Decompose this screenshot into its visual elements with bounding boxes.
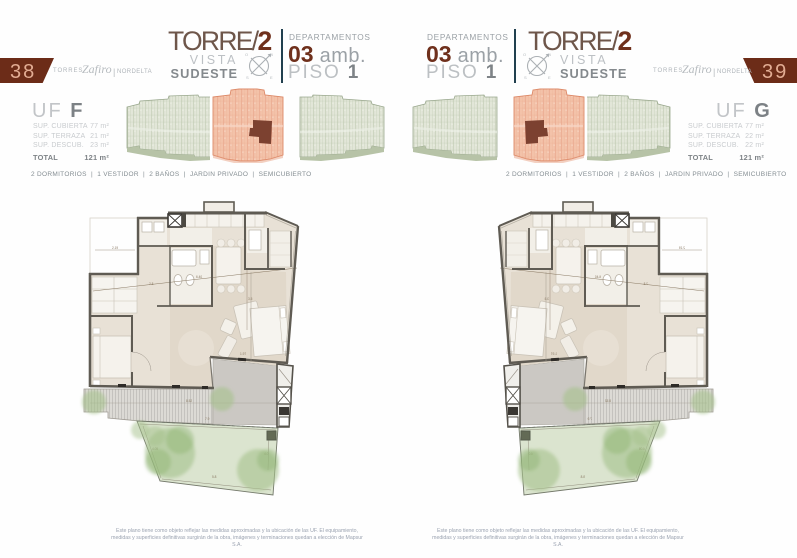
svg-text:O: O xyxy=(523,52,526,57)
svg-text:N: N xyxy=(270,52,273,57)
svg-text:E: E xyxy=(270,75,273,80)
svg-text:O: O xyxy=(245,52,248,57)
svg-text:S: S xyxy=(524,75,527,80)
svg-text:E: E xyxy=(548,75,551,80)
svg-text:N: N xyxy=(548,52,551,57)
svg-text:S: S xyxy=(246,75,249,80)
